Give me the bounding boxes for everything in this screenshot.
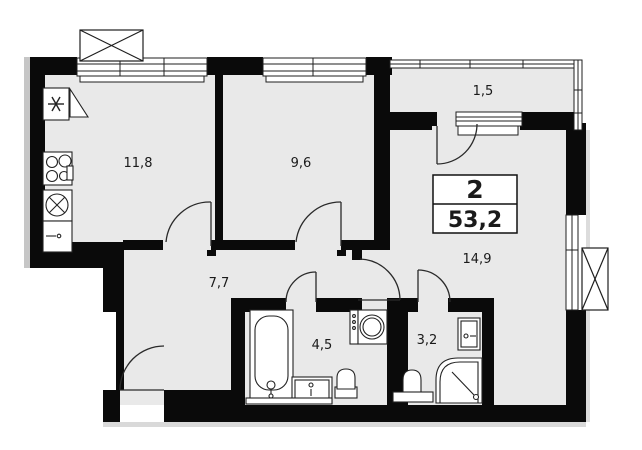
floor-kitchen-bedroom xyxy=(45,75,374,250)
kitchen-counter-icon xyxy=(43,221,72,252)
total-area: 53,2 xyxy=(448,208,502,233)
wall-sink-icon xyxy=(458,318,480,350)
floor-plan: 11,8 9,6 1,5 14,9 7,7 4,5 3,2 2 53,2 xyxy=(0,0,642,450)
label-balcony-area: 1,5 xyxy=(473,84,494,99)
shower-cabin-icon xyxy=(436,358,482,403)
floor-plan-svg: 11,8 9,6 1,5 14,9 7,7 4,5 3,2 2 53,2 xyxy=(0,0,642,450)
washing-machine-icon xyxy=(350,310,387,344)
window-living-right xyxy=(566,215,578,310)
label-kitchen-area: 11,8 xyxy=(124,156,153,171)
toilet-45-icon xyxy=(335,369,357,398)
stove-icon xyxy=(43,152,73,185)
label-bathroom-area: 4,5 xyxy=(312,338,333,353)
label-shower-area: 3,2 xyxy=(417,333,438,348)
window-balcony-wall xyxy=(456,112,522,135)
label-bedroom-area: 9,6 xyxy=(291,156,312,171)
label-hallway-area: 7,7 xyxy=(209,276,230,291)
label-living-area: 14,9 xyxy=(463,252,492,267)
bathtub-icon xyxy=(250,310,293,403)
kitchen-sink-icon xyxy=(43,190,72,221)
bath-platform xyxy=(246,398,332,404)
ac-unit-top-icon xyxy=(80,30,143,61)
rooms-count: 2 xyxy=(466,175,483,204)
window-bedroom xyxy=(263,58,366,82)
ac-unit-right-icon xyxy=(582,248,608,310)
title-box: 2 53,2 xyxy=(433,175,517,233)
